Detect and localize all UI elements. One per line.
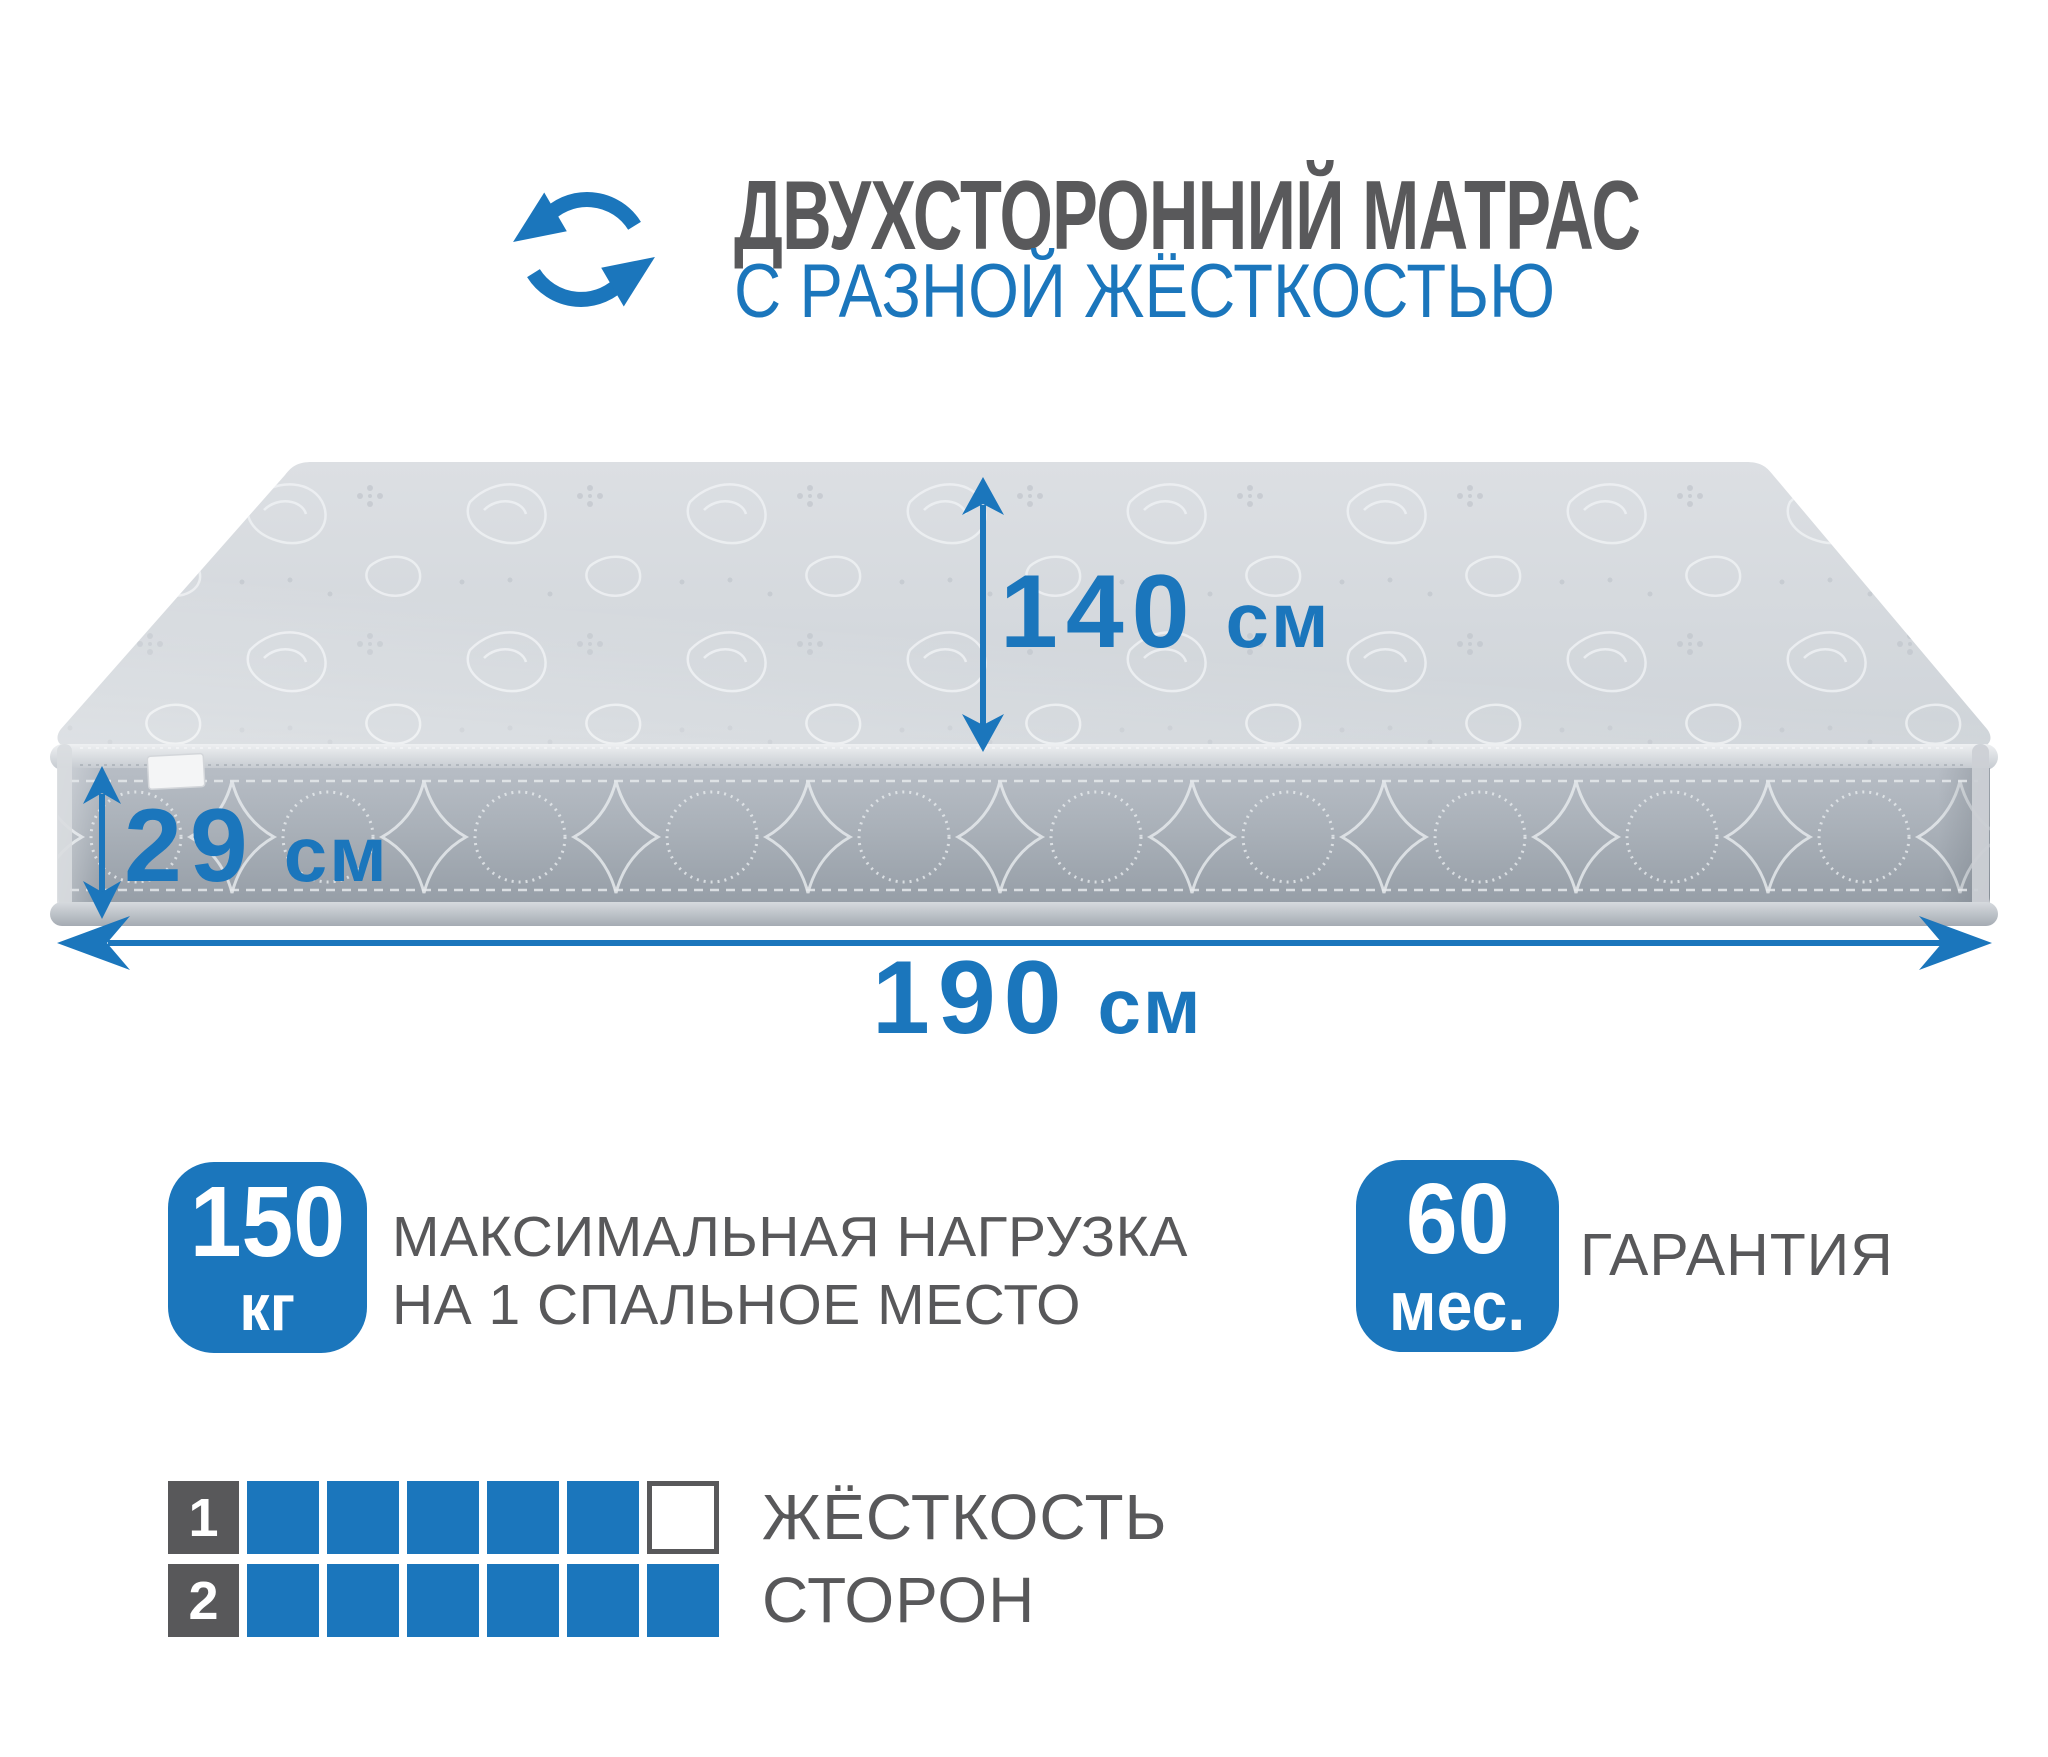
hardness-grid: 12: [168, 1481, 719, 1647]
hardness-cell-filled: [407, 1564, 479, 1637]
mattress-tag: [147, 754, 205, 790]
hardness-row-label: 2: [168, 1564, 239, 1637]
hardness-cell-filled: [487, 1564, 559, 1637]
page-subtitle: С РАЗНОЙ ЖЁСТКОСТЬЮ: [734, 254, 1689, 330]
hardness-cell-filled: [567, 1481, 639, 1554]
max-load-value: 150: [190, 1175, 345, 1270]
hardness-cell-filled: [487, 1481, 559, 1554]
mattress-height-dimension: 29 см: [124, 794, 389, 898]
hardness-cell-filled: [327, 1564, 399, 1637]
warranty-badge: 60 мес.: [1356, 1160, 1559, 1352]
hardness-label-line2: СТОРОН: [762, 1564, 1035, 1637]
hardness-cell-empty: [647, 1481, 719, 1554]
hardness-row: 1: [168, 1481, 719, 1554]
warranty-label: ГАРАНТИЯ: [1580, 1226, 1894, 1285]
warranty-value: 60: [1406, 1172, 1509, 1267]
rotate-arrows-icon: [498, 176, 670, 324]
mattress-width-dimension: 140 см: [1000, 560, 1331, 664]
max-load-badge: 150 кг: [168, 1162, 367, 1353]
hardness-row-label: 1: [168, 1481, 239, 1554]
max-load-label: МАКСИМАЛЬНАЯ НАГРУЗКА НА 1 СПАЛЬНОЕ МЕСТ…: [392, 1203, 1188, 1339]
hardness-cell-filled: [247, 1564, 319, 1637]
infographic: ДВУХСТОРОННИЙ МАТРАС С РАЗНОЙ ЖЁСТКОСТЬЮ: [0, 0, 2048, 1757]
hardness-row: 2: [168, 1564, 719, 1637]
hardness-label-line1: ЖЁСТКОСТЬ: [762, 1481, 1168, 1554]
mattress-length-dimension: 190 см: [872, 946, 1203, 1050]
hardness-cell-filled: [407, 1481, 479, 1554]
hardness-cell-filled: [567, 1564, 639, 1637]
hardness-cell-filled: [247, 1481, 319, 1554]
mattress-illustration: [0, 400, 2048, 1020]
hardness-cell-filled: [327, 1481, 399, 1554]
hardness-cell-filled: [647, 1564, 719, 1637]
warranty-unit: мес.: [1389, 1271, 1525, 1341]
max-load-unit: кг: [240, 1274, 296, 1340]
